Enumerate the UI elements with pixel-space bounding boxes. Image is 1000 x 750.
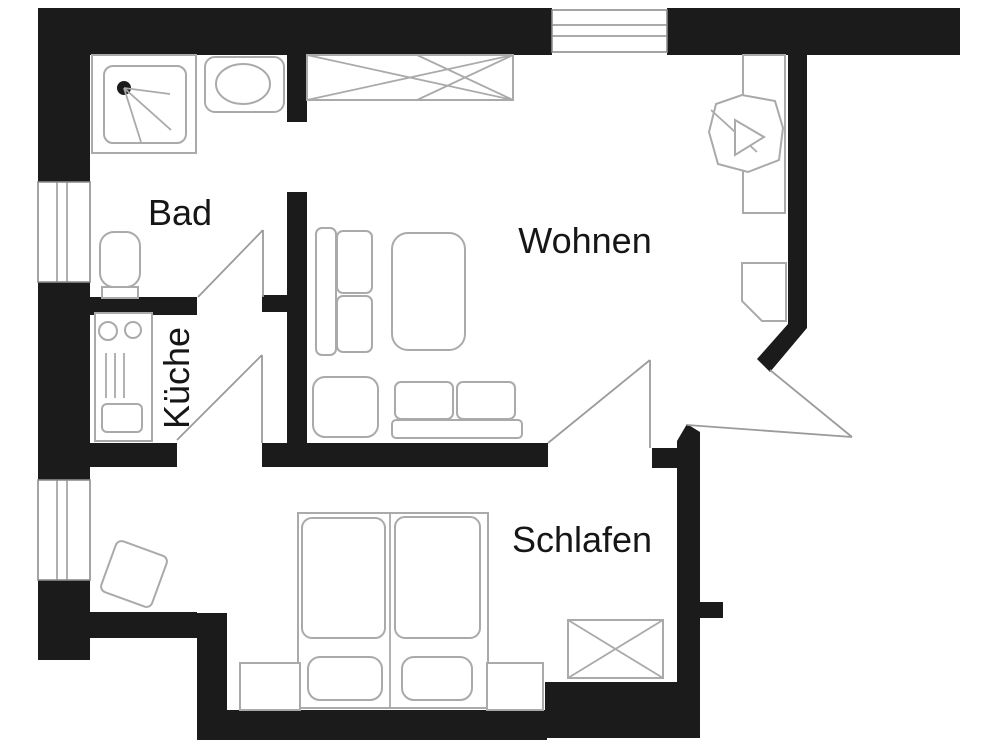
kitchen-sink — [102, 404, 142, 432]
sofa-cushion — [337, 296, 372, 352]
label-living-room: Wohnen — [518, 220, 651, 261]
label-bedroom: Schlafen — [512, 519, 652, 560]
wall-bottom-right-block — [545, 682, 700, 738]
wall-hinge-stub — [262, 295, 287, 312]
sofa2-base — [392, 420, 522, 438]
wall-interior-vertical — [287, 192, 307, 467]
toilet-bowl — [100, 232, 140, 287]
armchair-square — [313, 377, 378, 437]
pillow — [308, 657, 382, 700]
washbasin-bowl — [216, 64, 270, 104]
wall-left-upper — [38, 8, 90, 182]
window-left-lower — [38, 480, 90, 580]
mattress — [302, 518, 385, 638]
sofa-cushion — [337, 231, 372, 293]
wall-bedroom-door-stub — [652, 448, 680, 468]
wall-left-middle — [38, 282, 90, 480]
label-kitchen: Küche — [156, 327, 197, 429]
toilet-tank — [102, 287, 138, 298]
wall-bottom-left — [227, 710, 547, 740]
coffee-table — [392, 233, 465, 350]
nightstand-right — [487, 663, 543, 710]
wall-right-spur — [700, 602, 723, 618]
wall-south-living — [262, 443, 548, 467]
side-table — [742, 263, 786, 321]
sofa2-cushion — [395, 382, 453, 419]
wall-right-bedroom — [677, 424, 700, 682]
sofa-backrest — [316, 228, 336, 355]
stove-burner — [99, 322, 117, 340]
kitchen-fixtures — [95, 313, 152, 441]
wardrobe-bedroom — [568, 620, 663, 678]
stove-burner — [125, 322, 141, 338]
wall-west-connector — [82, 612, 197, 638]
floor-plan-drawing: Bad Küche Wohnen Schlafen — [0, 0, 1000, 750]
door-bedroom — [548, 360, 650, 448]
pillow — [402, 657, 472, 700]
window-left-upper — [38, 182, 90, 282]
mattress — [395, 517, 480, 638]
door-bathroom — [198, 230, 263, 297]
wardrobe-top — [307, 55, 513, 100]
armchair-alcove — [99, 539, 168, 608]
floor-plan: Bad Küche Wohnen Schlafen — [0, 0, 1000, 750]
door-balcony — [687, 370, 852, 437]
bathroom-fixtures — [92, 55, 284, 298]
window-top — [552, 10, 667, 52]
wall-top-left — [38, 8, 552, 55]
shower-basin — [104, 66, 186, 143]
nightstand-left — [240, 663, 300, 710]
wall-south-kitchen — [90, 443, 177, 467]
wall-bath-stub — [287, 55, 307, 122]
wall-top-right — [667, 8, 960, 55]
sofa2-cushion — [457, 382, 515, 419]
label-bathroom: Bad — [148, 192, 212, 233]
wall-bedroom-left — [197, 613, 227, 740]
